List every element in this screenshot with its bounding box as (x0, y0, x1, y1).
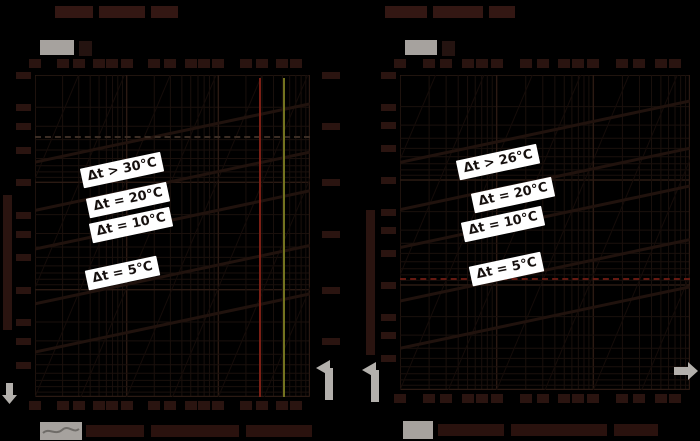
tick-label-illegible (16, 362, 31, 369)
tick-label-illegible (572, 59, 584, 68)
tick-label-illegible (16, 338, 31, 345)
tick-label-illegible (381, 332, 396, 339)
y-axis-title-illegible (366, 210, 375, 355)
tick-label-illegible (16, 212, 31, 219)
tick-label-illegible (322, 338, 340, 345)
tick-label-illegible (381, 314, 396, 321)
tick-label-illegible (616, 59, 628, 68)
tick-label-illegible (322, 72, 340, 79)
tick-label-illegible (121, 401, 133, 410)
tick-label-illegible (290, 401, 302, 410)
tick-label-illegible (240, 401, 252, 410)
tick-label-illegible (16, 72, 31, 79)
tick-label-illegible (476, 394, 488, 403)
legend-box-icon (403, 421, 433, 439)
tick-label-illegible (423, 59, 435, 68)
tick-label-illegible (16, 254, 31, 261)
tick-label-illegible (537, 394, 549, 403)
axis-arrow-right-icon (674, 358, 700, 384)
tick-label-illegible (57, 401, 69, 410)
tick-label-illegible (587, 394, 599, 403)
tick-label-illegible (106, 401, 118, 410)
tick-label-illegible (476, 59, 488, 68)
tick-label-illegible (290, 59, 302, 68)
tick-label-illegible (57, 59, 69, 68)
tick-label-illegible (16, 319, 31, 326)
red-dashed-reference-line (400, 278, 690, 280)
tick-label-illegible (16, 287, 31, 294)
tick-label-illegible (381, 177, 396, 184)
tick-label-illegible (16, 104, 31, 111)
plot-grid-right (400, 75, 690, 390)
tick-label-illegible (381, 72, 396, 79)
tick-label-illegible (29, 401, 41, 410)
tick-label-illegible (93, 59, 105, 68)
tick-label-illegible (381, 122, 396, 129)
tick-label-illegible (558, 394, 570, 403)
tick-label-illegible (669, 59, 681, 68)
tick-label-illegible (520, 59, 532, 68)
tick-label-illegible (16, 179, 31, 186)
tick-label-illegible (164, 401, 176, 410)
panel-right-title-illegible (385, 6, 515, 18)
tick-label-illegible (16, 123, 31, 130)
tick-label-illegible (212, 59, 224, 68)
tick-label-illegible (121, 59, 133, 68)
kv-symbol-illegible (442, 41, 455, 56)
tick-label-illegible (276, 401, 288, 410)
axis-arrow-bent-icon (360, 360, 386, 404)
tick-label-illegible (491, 394, 503, 403)
figure-canvas: Δt > 30°C Δt = 20°C Δt = 10°C Δt = 5°C (0, 0, 700, 441)
tick-label-illegible (185, 401, 197, 410)
tick-label-illegible (381, 227, 396, 234)
tick-label-illegible (198, 401, 210, 410)
tick-label-illegible (73, 401, 85, 410)
tick-label-illegible (322, 231, 340, 238)
tick-label-illegible (462, 59, 474, 68)
tick-label-illegible (322, 179, 340, 186)
tick-label-illegible (462, 394, 474, 403)
tick-label-illegible (633, 394, 645, 403)
legend-text-illegible (438, 424, 658, 436)
tick-label-illegible (381, 209, 396, 216)
tick-label-illegible (148, 59, 160, 68)
tick-label-illegible (185, 59, 197, 68)
tick-label-illegible (212, 401, 224, 410)
tick-label-illegible (520, 394, 532, 403)
tick-label-illegible (164, 59, 176, 68)
tick-label-illegible (381, 250, 396, 257)
tick-label-illegible (106, 59, 118, 68)
tick-label-illegible (240, 59, 252, 68)
tick-label-illegible (93, 401, 105, 410)
tick-label-illegible (572, 394, 584, 403)
tick-label-illegible (394, 59, 406, 68)
tick-label-illegible (381, 145, 396, 152)
tick-label-illegible (381, 355, 396, 362)
tick-label-illegible (440, 394, 452, 403)
tick-label-illegible (29, 59, 41, 68)
tick-label-illegible (381, 282, 396, 289)
tick-label-illegible (198, 59, 210, 68)
tick-label-illegible (394, 394, 406, 403)
tick-label-illegible (440, 59, 452, 68)
tick-label-illegible (73, 59, 85, 68)
tick-label-illegible (322, 287, 340, 294)
legend-chip-grey (405, 40, 437, 55)
tick-label-illegible (322, 123, 340, 130)
tick-label-illegible (655, 394, 667, 403)
tick-label-illegible (276, 59, 288, 68)
tick-label-illegible (256, 59, 268, 68)
tick-label-illegible (491, 59, 503, 68)
tick-label-illegible (256, 401, 268, 410)
tick-label-illegible (537, 59, 549, 68)
tick-label-illegible (587, 59, 599, 68)
tick-label-illegible (16, 147, 31, 154)
tick-label-illegible (16, 231, 31, 238)
tick-label-illegible (633, 59, 645, 68)
tick-label-illegible (655, 59, 667, 68)
tick-label-illegible (616, 394, 628, 403)
tick-label-illegible (423, 394, 435, 403)
tick-label-illegible (558, 59, 570, 68)
tick-label-illegible (148, 401, 160, 410)
tick-label-illegible (669, 394, 681, 403)
tick-label-illegible (381, 104, 396, 111)
